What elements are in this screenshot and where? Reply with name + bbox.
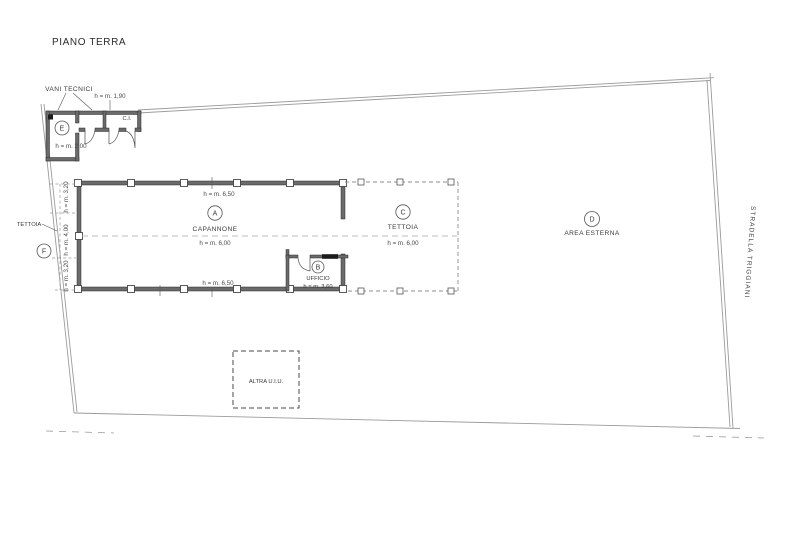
tettoia-c: C TETTOIA h = m. 6,00 <box>345 179 458 294</box>
street-label: STRADELLA TRIGGIANI <box>743 206 756 299</box>
leader-vani-tecnici <box>58 93 92 110</box>
room-code-b: B <box>316 265 321 272</box>
capannone-h-mid: h = m. 6,00 <box>199 240 231 247</box>
tettoia-c-name: TETTOIA <box>388 224 419 231</box>
capannone-h-bottom: h = m. 6,50 <box>202 280 234 287</box>
room-code-c: C <box>400 210 405 217</box>
door-arc-vani-3 <box>126 131 135 148</box>
tettoia-f-h2: h = m. 4,00 <box>63 224 70 256</box>
vani-tecnici-h: h = m. 2,00 <box>55 143 87 150</box>
ufficio-name: UFFICIO <box>306 276 330 282</box>
vani-tecnici-label: VANI TECNICI <box>45 86 93 93</box>
canopy-posts <box>358 179 454 294</box>
pilaster-left-mid <box>76 233 83 240</box>
shaft-block <box>48 115 53 120</box>
room-ufficio: B UFFICIO h = m. 3,60 <box>286 250 348 292</box>
room-code-f: F <box>42 249 46 256</box>
tettoia-f-h3: h = m. 3,20 <box>63 260 70 292</box>
altra-uiu: ALTRA U.I.U. <box>233 351 299 408</box>
ci-label: C.I. <box>122 116 131 122</box>
wall-segment-dark <box>322 254 338 259</box>
vani-tecnici-h-small: h = m. 1,90 <box>94 93 126 100</box>
building-capannone: h = m. 6,50 A CAPANNONE h = m. 6,00 h = … <box>75 177 458 297</box>
door-arc-vani-2 <box>109 130 119 144</box>
tettoia-f-h1: h = m. 3,20 <box>63 181 70 213</box>
boundary-tick-left <box>46 431 114 433</box>
area-esterna: D AREA ESTERNA <box>564 212 620 238</box>
floor-plan-canvas: PIANO TERRA VANI TECNICI h = m. 1,90 <box>0 0 800 533</box>
building-vani-tecnici: VANI TECNICI h = m. 1,90 E h = m. 2,00 C… <box>45 86 141 161</box>
tettoia-c-h: h = m. 6,00 <box>387 240 419 247</box>
altra-uiu-label: ALTRA U.I.U. <box>249 379 284 385</box>
site-boundary <box>41 73 764 438</box>
tettoia-f-name: TETTOIA <box>17 222 42 228</box>
page-title: PIANO TERRA <box>52 37 126 48</box>
room-code-d: D <box>589 217 594 224</box>
capannone-h-top: h = m. 6,50 <box>203 191 235 198</box>
ufficio-h: h = m. 3,60 <box>303 284 332 290</box>
room-code-e: E <box>60 126 65 133</box>
leader-tettoia-f <box>42 224 57 231</box>
door-arc-vani-1 <box>85 130 95 144</box>
door-arc-ufficio <box>298 258 310 271</box>
capannone-name: CAPANNONE <box>193 226 238 233</box>
boundary-tick-right <box>693 436 764 438</box>
room-code-a: A <box>213 211 218 218</box>
area-esterna-name: AREA ESTERNA <box>564 230 620 237</box>
floor-plan-page: PIANO TERRA VANI TECNICI h = m. 1,90 <box>0 0 800 533</box>
tettoia-f: TETTOIA F h = m. 3,20 h = m. 4,00 h = m.… <box>17 181 76 292</box>
